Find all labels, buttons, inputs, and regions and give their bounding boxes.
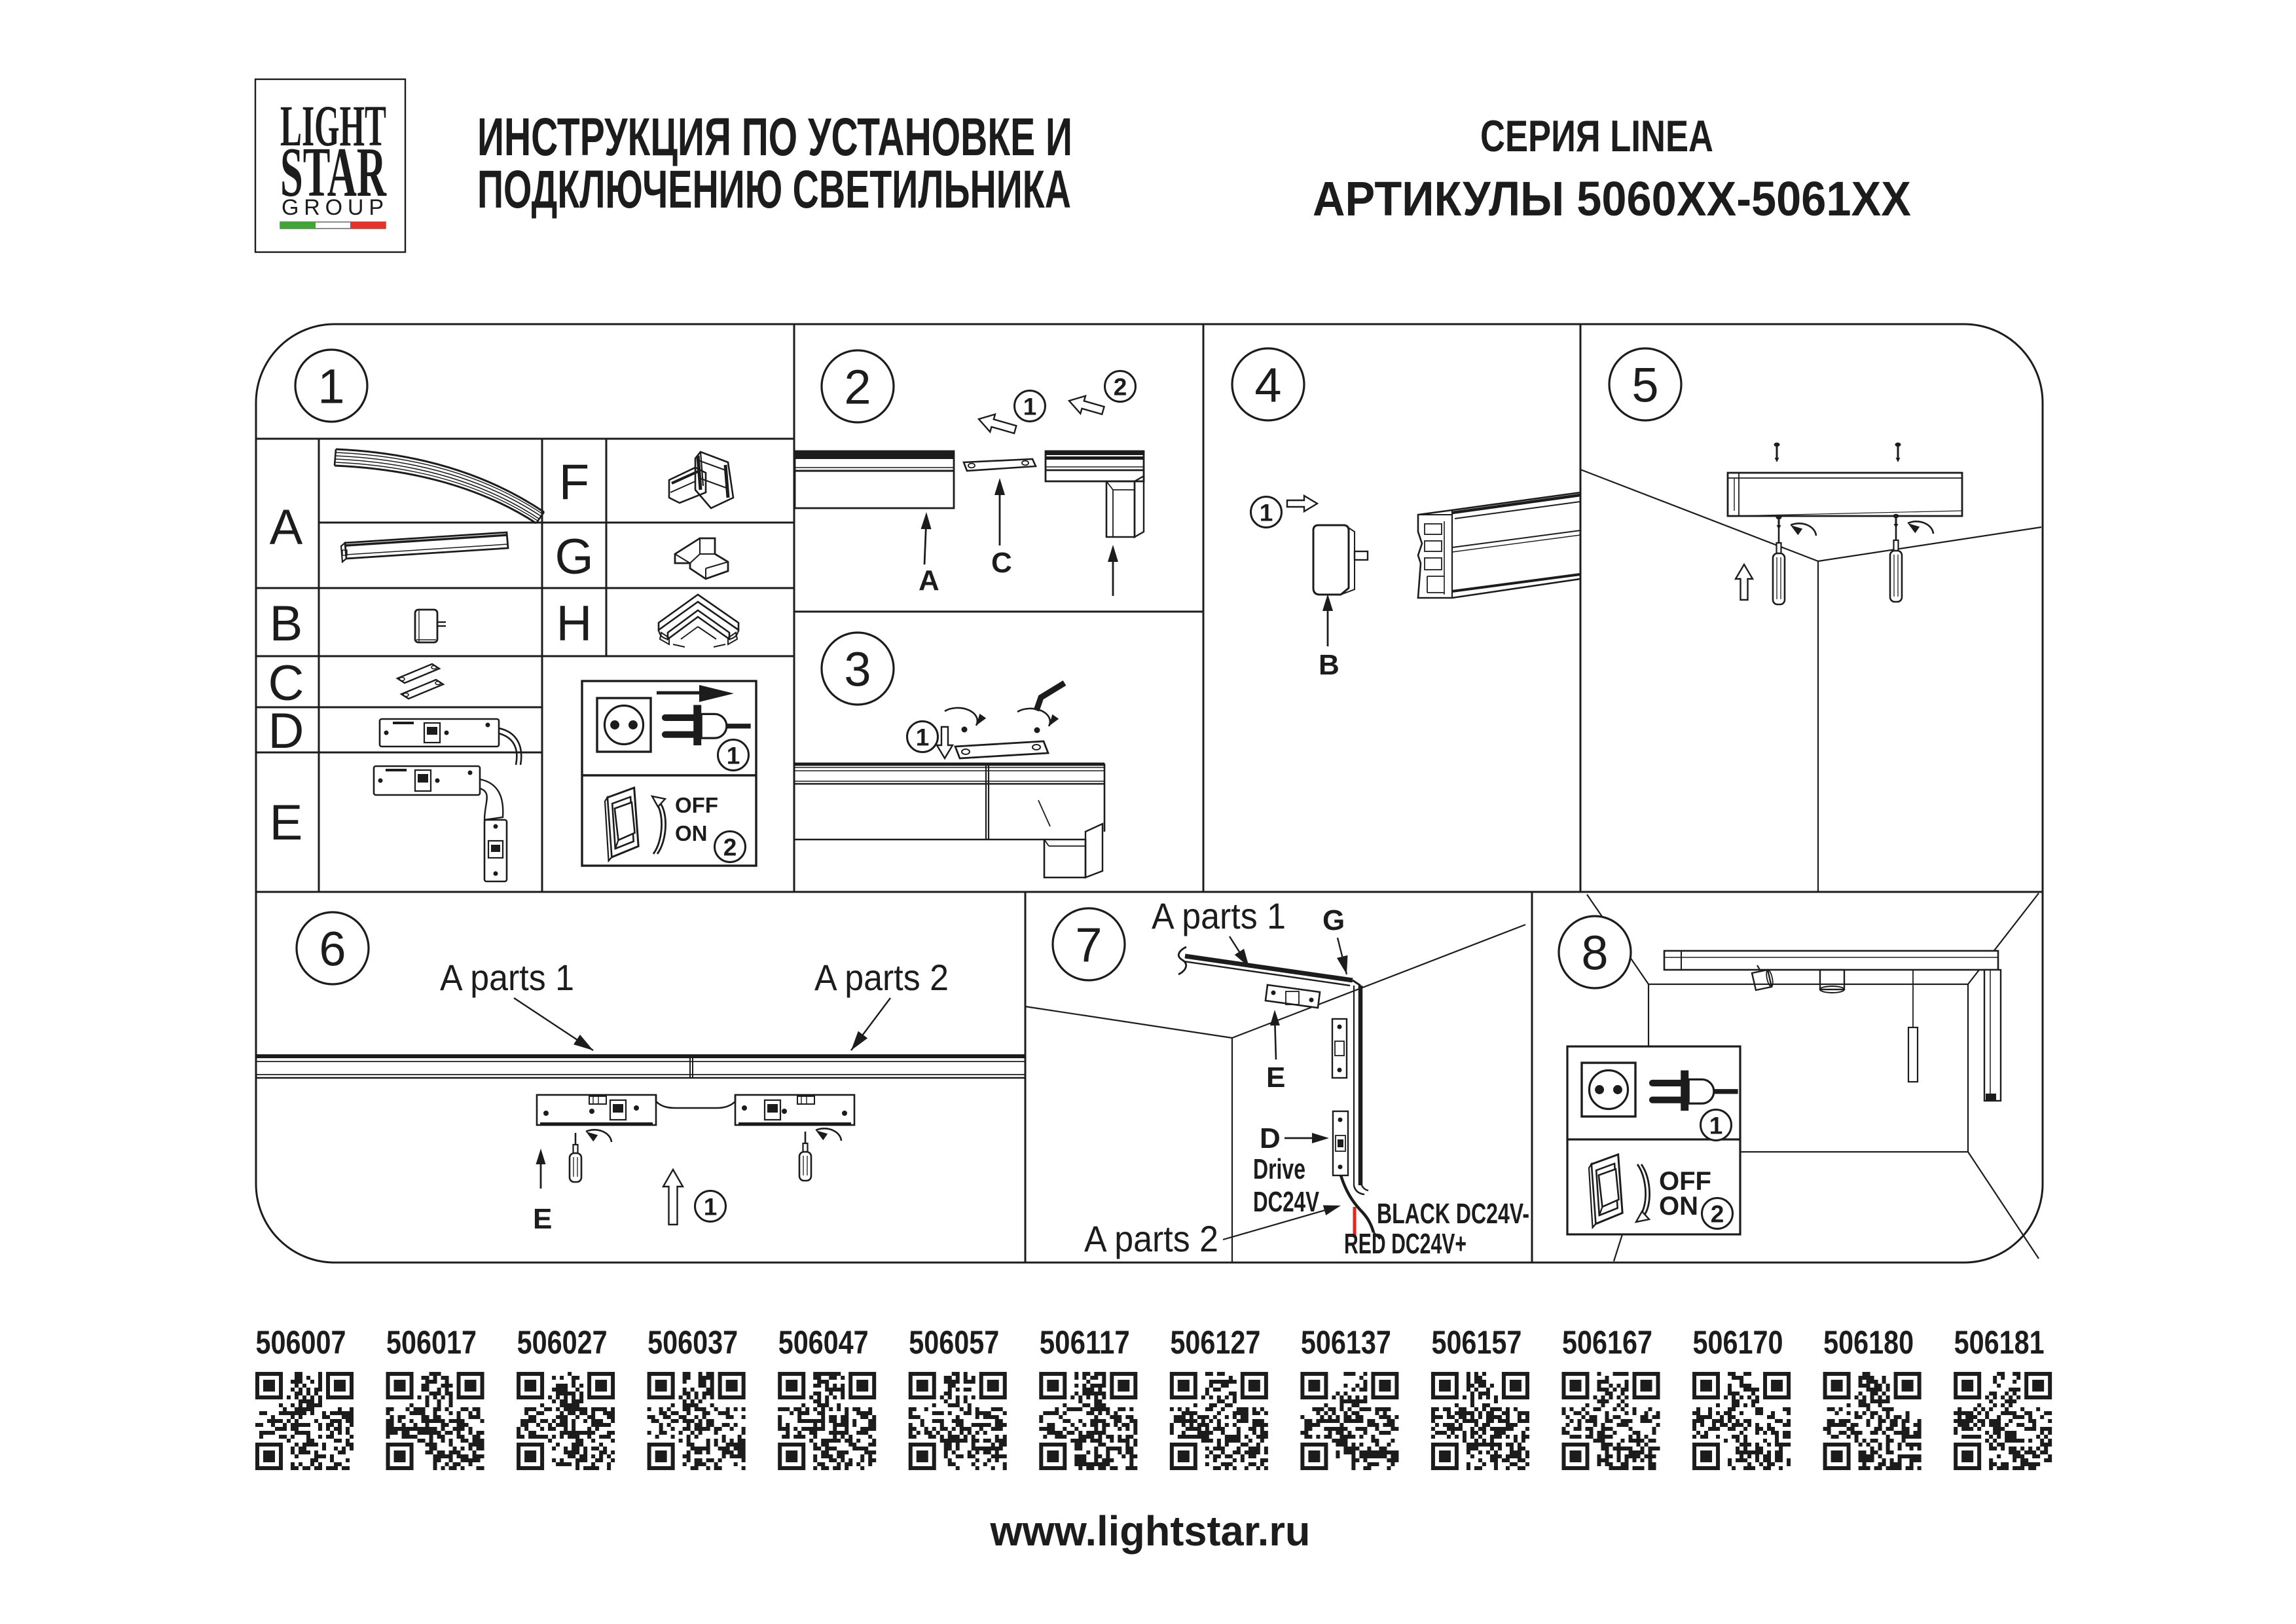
svg-text:OFF: OFF [675,793,718,817]
svg-text:506117: 506117 [1040,1324,1130,1361]
svg-text:506127: 506127 [1170,1324,1260,1361]
svg-text:1: 1 [318,359,344,413]
svg-text:3: 3 [844,642,871,696]
svg-text:A: A [919,564,939,597]
svg-text:DC24V: DC24V [1253,1186,1319,1218]
svg-text:СЕРИЯ LINEA: СЕРИЯ LINEA [1480,111,1713,161]
svg-text:6: 6 [319,921,346,976]
svg-text:A: A [270,500,303,555]
svg-text:D: D [1260,1122,1281,1154]
svg-text:A parts 2: A parts 2 [1084,1218,1218,1259]
svg-text:C: C [991,547,1012,579]
svg-text:7: 7 [1075,917,1102,972]
svg-text:ON: ON [675,821,708,845]
svg-text:506157: 506157 [1431,1324,1522,1361]
svg-text:2: 2 [844,360,871,414]
svg-text:506137: 506137 [1301,1324,1391,1361]
svg-text:5: 5 [1631,358,1658,412]
svg-text:RED DC24V+: RED DC24V+ [1344,1228,1467,1260]
svg-text:506017: 506017 [386,1324,477,1361]
svg-text:506180: 506180 [1823,1324,1914,1361]
svg-text:E: E [533,1203,552,1235]
svg-text:1: 1 [727,742,740,769]
svg-text:BLACK DC24V-: BLACK DC24V- [1377,1198,1529,1230]
svg-text:506007: 506007 [256,1324,346,1361]
svg-text:1: 1 [1260,499,1273,526]
svg-text:H: H [556,596,592,652]
svg-text:506170: 506170 [1693,1324,1783,1361]
svg-text:E: E [1266,1061,1285,1094]
svg-text:www.lightstar.ru: www.lightstar.ru [990,1507,1311,1555]
svg-text:1: 1 [704,1193,718,1220]
svg-text:506181: 506181 [1954,1324,2045,1361]
svg-text:506037: 506037 [647,1324,738,1361]
svg-text:B: B [270,596,303,652]
svg-text:F: F [559,454,589,510]
svg-text:E: E [270,795,303,851]
svg-text:2: 2 [1114,373,1127,400]
svg-text:B: B [1319,649,1339,681]
svg-text:GROUP: GROUP [282,195,384,220]
svg-text:4: 4 [1254,358,1281,412]
svg-text:ON: ON [1659,1192,1698,1221]
svg-text:1: 1 [916,724,930,750]
svg-text:ИНСТРУКЦИЯ ПО УСТАНОВКЕ И: ИНСТРУКЦИЯ ПО УСТАНОВКЕ И [477,107,1072,167]
svg-text:ПОДКЛЮЧЕНИЮ СВЕТИЛЬНИКА: ПОДКЛЮЧЕНИЮ СВЕТИЛЬНИКА [477,160,1071,219]
svg-text:506047: 506047 [778,1324,869,1361]
svg-text:506027: 506027 [517,1324,608,1361]
svg-text:2: 2 [1711,1200,1724,1227]
svg-text:2: 2 [723,834,737,860]
svg-text:D: D [268,703,304,759]
svg-text:A parts 1: A parts 1 [440,957,574,998]
svg-text:1: 1 [1023,393,1037,420]
svg-text:A parts 1: A parts 1 [1152,895,1286,936]
svg-text:506057: 506057 [909,1324,999,1361]
svg-text:Drive: Drive [1253,1153,1305,1185]
svg-text:G: G [1322,904,1345,936]
svg-text:506167: 506167 [1562,1324,1652,1361]
svg-text:АРТИКУЛЫ 5060ХХ-5061ХХ: АРТИКУЛЫ 5060ХХ-5061ХХ [1313,172,1911,226]
svg-text:G: G [555,529,593,585]
svg-text:A parts 2: A parts 2 [814,957,949,998]
svg-text:1: 1 [1709,1112,1723,1139]
svg-text:8: 8 [1581,925,1608,980]
